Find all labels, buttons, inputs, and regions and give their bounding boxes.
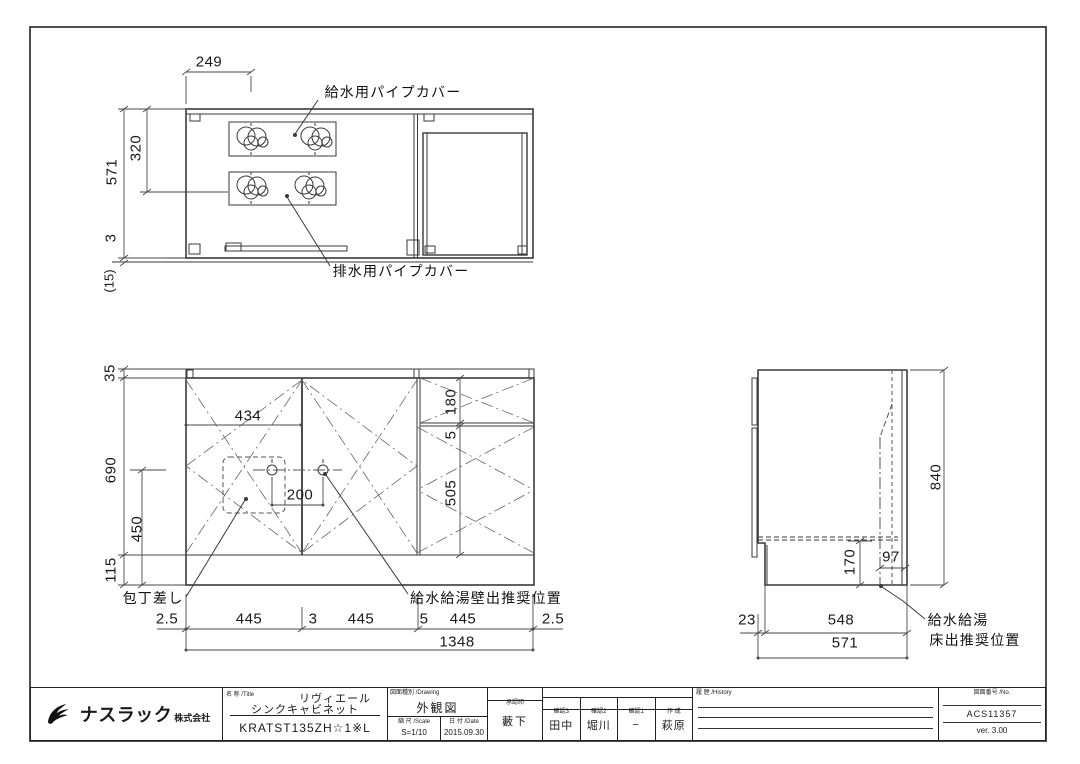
dim-front-bottom-5: 445	[450, 612, 477, 627]
drawing-sheet: 249 571 320 3 (15) 給水用パイプカバー 排水用パイプカバー 3…	[0, 0, 1080, 764]
label-knife-holder: 包丁差し	[123, 591, 184, 605]
dim-front-inner-height: 450	[130, 516, 145, 543]
company-logo-icon	[43, 701, 73, 727]
scale-date-row: 縮 尺 /Scale S=1/10 日 付 /Date 2015.09.30	[388, 717, 487, 740]
drawing-number-cell: 図面番号 /No. ACS11357 ver. 3.00	[939, 688, 1045, 740]
dim-front-counter-height: 35	[103, 364, 118, 382]
date-value: 2015.09.30	[441, 728, 487, 737]
dim-side-depth-total: 571	[832, 636, 859, 651]
dim-front-bottom-1: 445	[236, 612, 263, 627]
title-cell: 名 称 /Title リヴィエール シンクキャビネット KRATST135ZH☆…	[223, 688, 388, 740]
scale-header: 縮 尺 /Scale	[388, 719, 440, 725]
dim-side-bottom-space: 170	[843, 549, 858, 576]
dim-front-bottom-2: 3	[309, 612, 318, 627]
history-rule	[698, 728, 933, 729]
dim-side-toe-inset: 23	[738, 613, 756, 628]
dim-plan-depth-total: 571	[105, 159, 120, 186]
pipe-hole-cluster	[237, 123, 268, 155]
drawing-type-header: 図面種別 /Drawing	[390, 690, 439, 696]
dim-plan-top-width: 249	[196, 55, 223, 70]
drawing-type-cell: 図面種別 /Drawing 外観図 縮 尺 /Scale S=1/10 日 付 …	[388, 688, 488, 740]
company-suffix: 株式会社	[174, 713, 210, 723]
title-row-1: 名 称 /Title リヴィエール	[223, 688, 387, 701]
product-name-line1: リヴィエール	[299, 690, 371, 706]
side-leader-lines	[879, 584, 925, 619]
drawing-linework	[0, 0, 1080, 764]
drawing-version: ver. 3.00	[939, 726, 1045, 735]
dim-front-total-width: 1348	[439, 635, 474, 650]
dim-front-left-span: 434	[235, 409, 262, 424]
drawing-number-value: ACS11357	[939, 709, 1045, 719]
pipe-hole-cluster	[237, 172, 268, 204]
dim-front-body-height: 690	[104, 457, 119, 484]
title-block: ナスラック株式会社 名 称 /Title リヴィエール シンクキャビネット KR…	[30, 687, 1046, 741]
scale-value: S=1/10	[388, 728, 440, 737]
label-drain-pipe-cover: 排水用パイプカバー	[333, 264, 470, 278]
dim-front-door-height: 505	[444, 480, 459, 507]
drawing-number-header: 図面番号 /No.	[939, 690, 1045, 696]
dim-front-drawer-height: 180	[444, 389, 459, 416]
company-name: ナスラック	[80, 705, 173, 725]
checkup-name: 堀川	[581, 710, 619, 740]
dim-side-depth-inner: 548	[828, 613, 855, 628]
page-frame	[30, 27, 1046, 741]
checkup-name: 田中	[543, 710, 581, 740]
dim-front-faucet-span: 200	[287, 488, 314, 503]
approver-cell: 承認印 藪下	[488, 688, 543, 740]
dim-plan-back-gap: 3	[104, 234, 119, 243]
drawing-type-top: 図面種別 /Drawing 外観図	[388, 688, 487, 717]
label-supply-pipe-cover: 給水用パイプカバー	[325, 85, 462, 99]
plan-view-linework	[112, 109, 533, 262]
date-header: 日 付 /Date	[441, 719, 487, 725]
drawing-type-value: 外観図	[388, 699, 487, 716]
dim-front-bottom-4: 5	[420, 612, 429, 627]
pipe-hole-cluster	[301, 123, 332, 155]
checkup-subheaders: 確認3 確認2 確認1 作 成	[543, 698, 692, 710]
number-rule	[943, 722, 1041, 723]
number-rule	[943, 705, 1041, 706]
company-logo-cell: ナスラック株式会社	[31, 688, 223, 740]
dim-front-bottom-3: 445	[348, 612, 375, 627]
pipe-hole-cluster	[295, 172, 326, 204]
dim-plan-depth-inner: 320	[129, 135, 144, 162]
approver-name: 藪下	[488, 701, 542, 740]
checkup-name: 萩原	[656, 710, 693, 740]
label-wall-outlet: 給水給湯壁出推奨位置	[410, 591, 562, 605]
title-header: 名 称 /Title	[226, 692, 254, 698]
dim-front-bottom-0: 2.5	[156, 612, 178, 627]
label-floor-outlet-line2: 床出推奨位置	[929, 633, 1020, 647]
front-door-swing-marks	[186, 378, 534, 553]
dim-front-gap: 5	[444, 431, 459, 440]
checkup-values: 田中 堀川 − 萩原	[543, 710, 692, 740]
front-view-linework	[186, 369, 534, 585]
dim-front-toe-height: 115	[104, 557, 119, 582]
history-cell: 履 歴 /History	[693, 688, 939, 740]
label-floor-outlet-line1: 給水給湯	[928, 613, 989, 627]
date-box: 日 付 /Date 2015.09.30	[441, 717, 487, 740]
scale-box: 縮 尺 /Scale S=1/10	[388, 717, 441, 740]
history-rule	[698, 707, 933, 708]
history-rule	[698, 717, 933, 718]
dim-front-bottom-6: 2.5	[542, 612, 564, 627]
model-number: KRATST135ZH☆1※L	[223, 716, 387, 740]
checkup-name: −	[618, 710, 656, 740]
dim-side-pipe-offset: 97	[882, 550, 900, 565]
dim-side-total-height: 840	[929, 464, 944, 491]
history-header: 履 歴 /History	[696, 690, 732, 696]
dim-plan-wall-gap: (15)	[103, 269, 116, 292]
checkup-cell: 照合者 /Check up by ナスラック総合工場 確認3 確認2 確認1 作…	[543, 688, 693, 740]
